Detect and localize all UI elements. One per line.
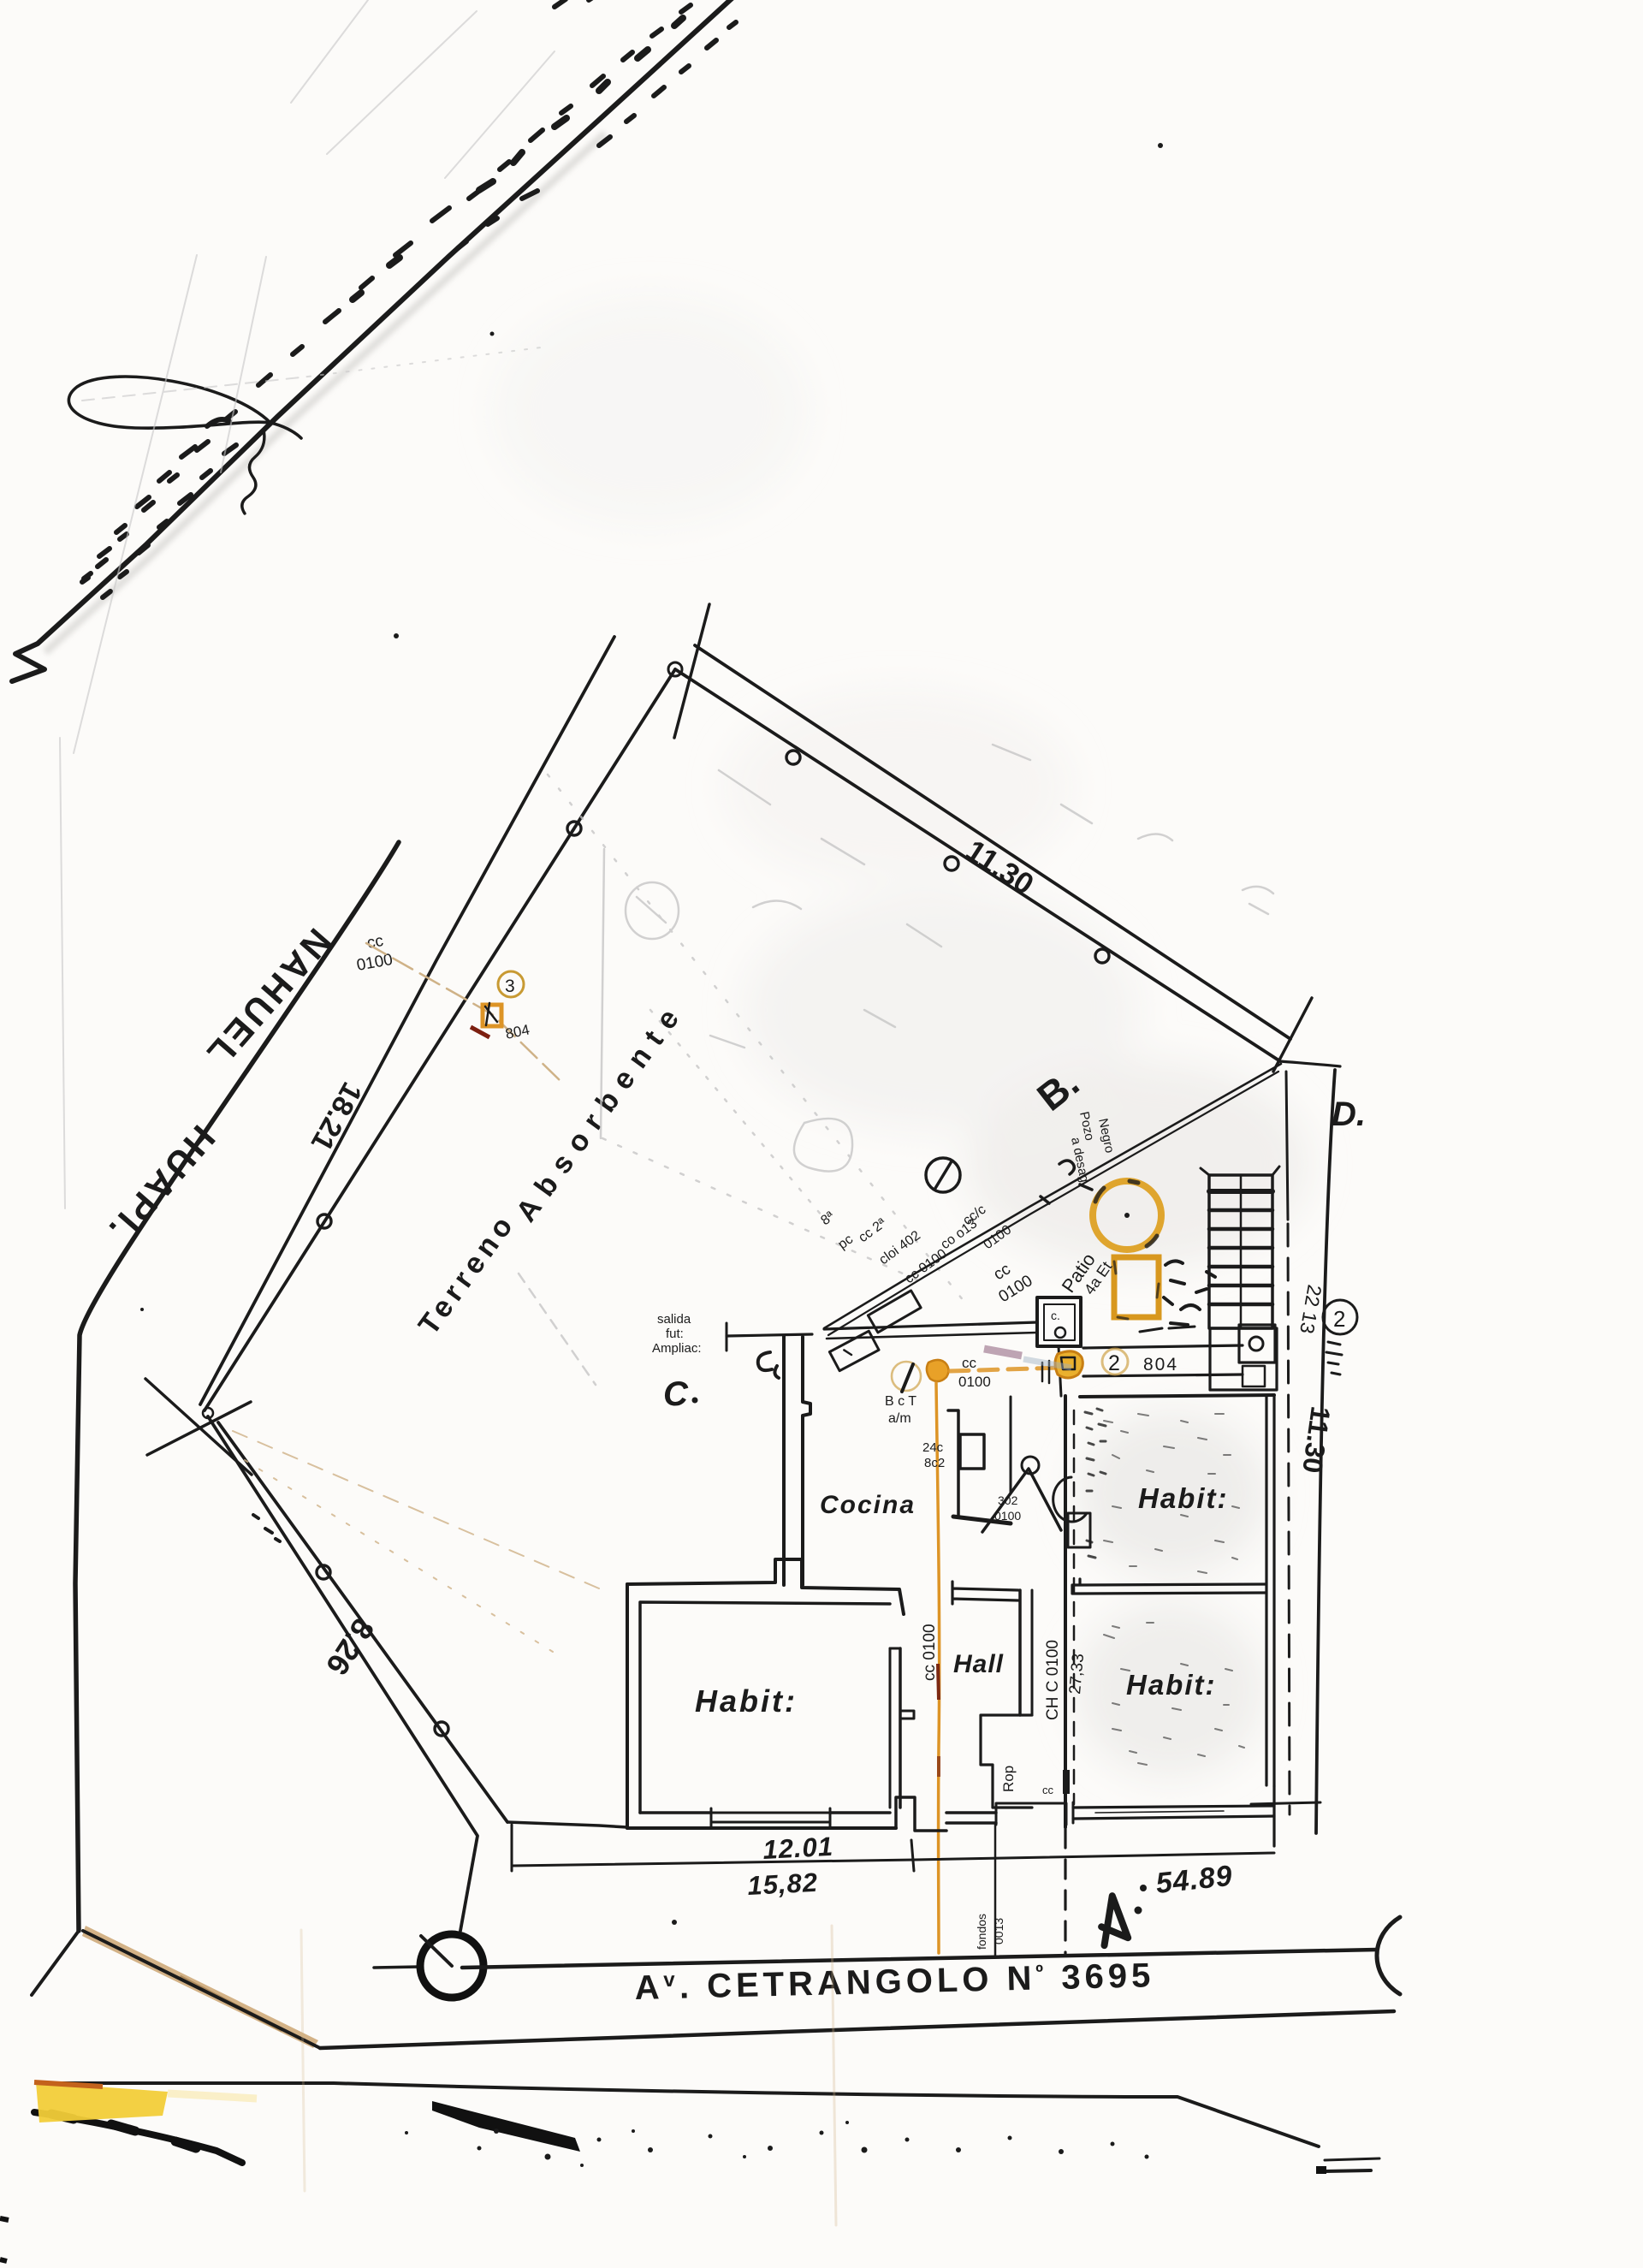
svg-text:cc: cc [365, 932, 384, 953]
svg-text:804: 804 [1143, 1355, 1178, 1374]
svg-text:2: 2 [1333, 1306, 1345, 1332]
svg-text:Hall: Hall [953, 1650, 1004, 1678]
svg-text:c.: c. [1051, 1309, 1060, 1322]
svg-text:B c T: B c T [885, 1394, 916, 1409]
svg-text:Habit:: Habit: [1138, 1482, 1229, 1514]
svg-text:24c: 24c [922, 1440, 944, 1455]
svg-text:cc 0100: cc 0100 [921, 1624, 939, 1681]
svg-text:Habit:: Habit: [1126, 1669, 1217, 1701]
svg-text:0013: 0013 [992, 1918, 1005, 1944]
svg-text:D.: D. [1332, 1095, 1366, 1133]
svg-text:15,82: 15,82 [747, 1867, 819, 1901]
svg-text:Habit:: Habit: [695, 1683, 798, 1719]
svg-text:2: 2 [1108, 1351, 1120, 1375]
svg-text:Cocina: Cocina [820, 1491, 916, 1519]
svg-text:0100: 0100 [958, 1374, 991, 1390]
svg-text:8c2: 8c2 [924, 1456, 945, 1470]
svg-text:Rop: Rop [1000, 1766, 1017, 1792]
svg-text:12.01: 12.01 [762, 1832, 834, 1865]
svg-text:salida: salida [657, 1312, 691, 1327]
svg-text:cc: cc [1042, 1784, 1054, 1796]
svg-text:a/m: a/m [888, 1411, 911, 1426]
svg-text:27,33: 27,33 [1066, 1653, 1088, 1695]
svg-text:302: 302 [998, 1493, 1018, 1507]
svg-text:fondos: fondos [975, 1914, 988, 1950]
svg-text:C: C [663, 1375, 689, 1413]
svg-text:3: 3 [505, 977, 515, 996]
svg-text:Ampliac:: Ampliac: [652, 1341, 702, 1356]
svg-text:fut:: fut: [666, 1327, 684, 1341]
svg-text:CH C 0100: CH C 0100 [1044, 1640, 1062, 1720]
